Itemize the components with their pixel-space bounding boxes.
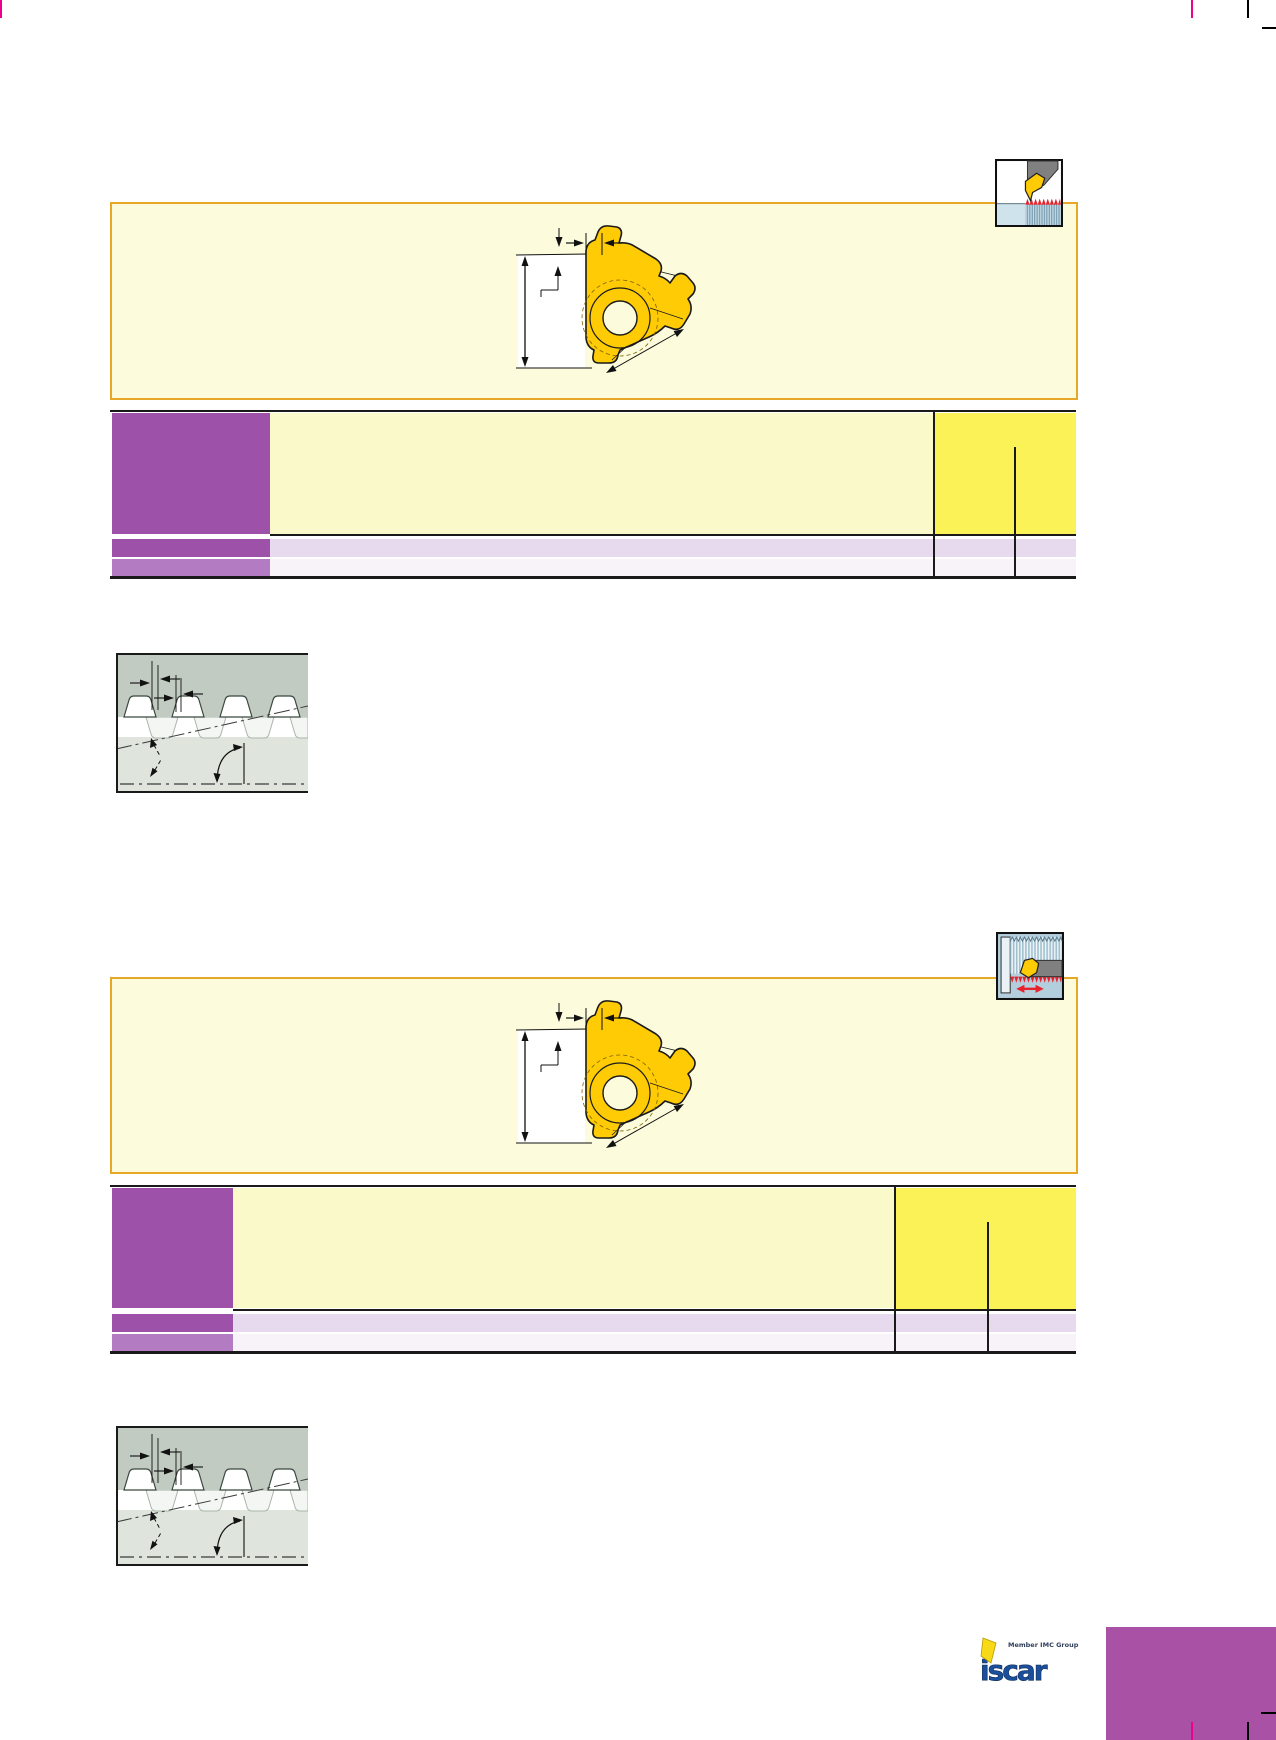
table1-row1-value-cell (270, 539, 1076, 557)
table2-row1-value-cell (233, 1314, 1076, 1332)
table1-rows-inner-divider (1014, 536, 1016, 578)
thread-profile-diagram-internal (116, 1426, 308, 1566)
crop-mark-right-top-horizontal (1262, 27, 1276, 29)
table1-top-rule (110, 410, 1076, 412)
table2-header-bottom-rule (233, 1309, 1076, 1311)
thread-profile-diagram-external (116, 653, 308, 793)
table1-header-bottom-rule (270, 534, 1076, 536)
logo-tagline: Member IMC Group (1008, 1641, 1079, 1649)
table1-header-cell-dimensions (270, 413, 933, 534)
crop-mark-right-bottom-horizontal (1261, 1712, 1276, 1714)
crop-mark-bottom-right-magenta (1191, 1722, 1193, 1740)
insert-dimension-drawing-external (500, 220, 700, 395)
iscar-logo: Member IMC Group iscar (978, 1636, 1080, 1686)
table2-row1-label-cell (112, 1314, 233, 1332)
internal-threading-operation-icon (996, 932, 1064, 1000)
crop-mark-bottom-right-black (1247, 1722, 1249, 1740)
table1-header-cell-designation (112, 413, 270, 534)
table1-header-cell-grades (935, 413, 1076, 535)
table2-top-rule (110, 1185, 1076, 1187)
table2-row2-value-cell (233, 1334, 1076, 1351)
external-threading-operation-icon (995, 159, 1063, 227)
table2-rows-divider (894, 1311, 896, 1353)
table2-rows-inner-divider (987, 1311, 989, 1353)
table2-row2-label-cell (112, 1334, 233, 1351)
catalog-page: Member IMC Group iscar (0, 0, 1276, 1740)
table1-row1-label-cell (112, 539, 270, 557)
table1-bottom-rule (110, 576, 1076, 579)
table2-bottom-rule (110, 1351, 1076, 1354)
table2-header-cell-dimensions (233, 1188, 894, 1308)
table1-rows-divider (933, 536, 935, 578)
table2-header-cell-designation (112, 1188, 233, 1308)
crop-mark-top-right-magenta (1191, 0, 1193, 18)
insert-dimension-drawing-internal (500, 995, 700, 1170)
table2-header-cell-grades (896, 1188, 1076, 1309)
table1-row2-label-cell (112, 559, 270, 576)
table1-header-inner-divider (1014, 447, 1016, 536)
crop-mark-top-left (0, 0, 2, 18)
crop-mark-top-right-black (1247, 0, 1249, 18)
table1-row2-value-cell (270, 559, 1076, 576)
table2-header-inner-divider (987, 1222, 989, 1311)
